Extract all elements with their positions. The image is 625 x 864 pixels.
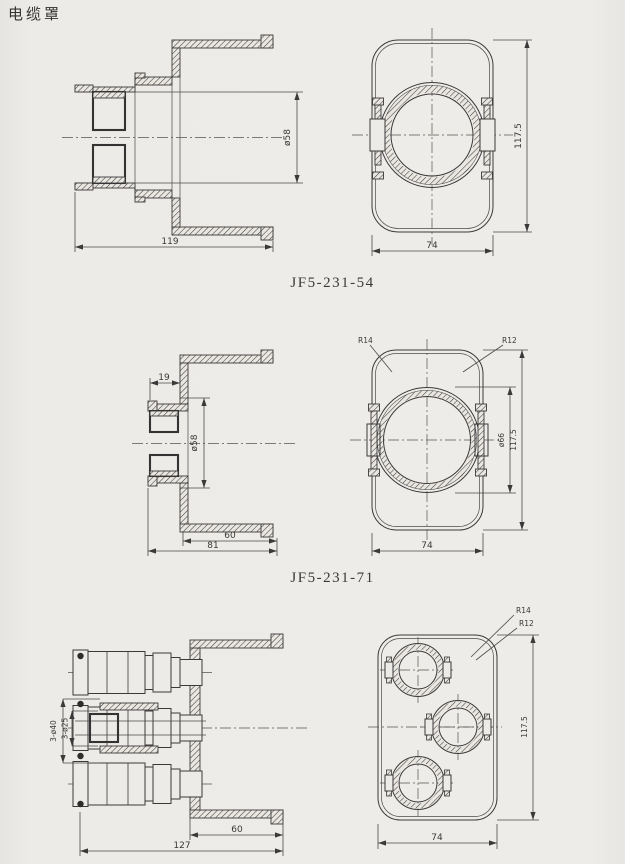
fig2-section-view: 19 ø58 60 81 — [130, 330, 310, 572]
fig2-dim-length: 81 — [148, 488, 277, 556]
dim-label-fig2-depth: 60 — [224, 531, 236, 541]
dim-label-fig2-dia: ø58 — [190, 434, 200, 451]
fig3-radius-callouts: R14 R12 — [471, 606, 534, 660]
page-title: 电缆罩 — [8, 3, 62, 24]
dim-label-fig3-depth: 60 — [231, 825, 243, 835]
fig3-clamp-bottom — [380, 750, 456, 816]
dim-label-fig3-holes-small: 3-ø25 — [61, 717, 70, 739]
fig1-caption: JF5-231-54 — [240, 275, 425, 292]
dim-label-fig3-width: 74 — [431, 833, 443, 843]
fig3-front-view: R14 R12 117.5 74 — [360, 595, 625, 864]
dim-label-fig2-nozzle: 19 — [158, 373, 170, 383]
dim-label-fig1-dia: ø58 — [283, 129, 293, 146]
dim-label-fig3-r14: R14 — [516, 606, 531, 615]
dim-label-fig2-len: 81 — [207, 541, 218, 551]
dim-label-fig1-len: 119 — [161, 237, 178, 247]
fig3-clamp-middle — [420, 694, 496, 760]
dim-label-fig1-width: 74 — [426, 241, 438, 251]
dim-label-fig3-len: 127 — [173, 841, 190, 851]
fig3-connector-middle — [68, 703, 308, 753]
dim-label-fig2-bore: ø66 — [497, 433, 506, 447]
fig1-front-body — [352, 28, 513, 245]
fig2-dim-diameter: ø58 — [180, 398, 210, 488]
fig1-section-view: ø58 119 — [60, 30, 315, 265]
fig3-dim-length: 127 — [80, 812, 283, 856]
fig3-dim-height: 117.5 — [497, 635, 539, 820]
dim-label-fig3-holes-large: 3-ø40 — [49, 720, 58, 742]
fig2-dim-width: 74 — [372, 533, 483, 556]
fig2-front-body — [350, 339, 502, 541]
fig3-cup — [190, 634, 283, 824]
fig3-dim-depth: 60 — [190, 818, 283, 856]
fig3-section-view: 3-ø40 3-ø25 60 127 — [20, 600, 320, 864]
dim-label-fig2-r12: R12 — [502, 336, 517, 345]
dim-label-fig3-r12: R12 — [519, 619, 534, 628]
fig3-front-body — [368, 635, 502, 820]
dim-label-fig3-height: 117.5 — [520, 716, 529, 738]
dim-label-fig2-r14: R14 — [358, 336, 373, 345]
drawing-sheet: { "page": { "title": "电缆罩" }, "figures":… — [0, 0, 625, 864]
fig3-clamp-top — [380, 637, 456, 703]
dim-label-fig2-width: 74 — [421, 541, 433, 551]
fig1-front-view: 117.5 74 — [340, 25, 580, 265]
dim-label-fig2-height: 117.5 — [509, 429, 518, 451]
dim-label-fig1-height: 117.5 — [514, 123, 524, 149]
fig3-dim-width: 74 — [378, 824, 497, 849]
fig2-caption: JF5-231-71 — [240, 570, 425, 587]
fig2-front-view: R14 R12 ø66 117.5 74 — [340, 325, 580, 575]
fig1-dim-height: 117.5 — [493, 40, 532, 232]
fig1-dim-width: 74 — [372, 235, 493, 256]
fig2-dim-nozzle: 19 — [150, 373, 180, 400]
